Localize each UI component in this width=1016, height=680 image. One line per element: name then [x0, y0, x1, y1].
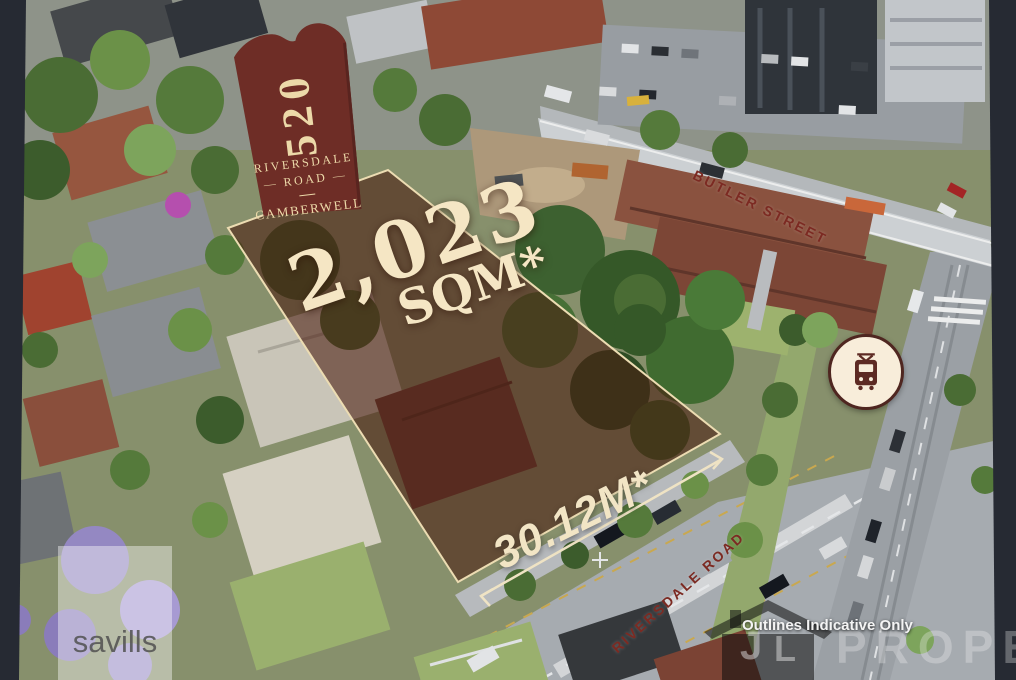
tram-stop-badge	[828, 334, 904, 410]
savills-watermark: savills	[58, 546, 172, 680]
property-sign: 520 RIVERSDALE — ROAD — CAMBERWELL	[224, 13, 371, 225]
sign-street-number: 520	[264, 67, 330, 160]
savills-wordmark: savills	[73, 624, 157, 680]
listing-image: 520 RIVERSDALE — ROAD — CAMBERWELL 2,023…	[0, 0, 1016, 680]
tram-icon	[844, 350, 888, 394]
sign-divider	[299, 193, 315, 196]
